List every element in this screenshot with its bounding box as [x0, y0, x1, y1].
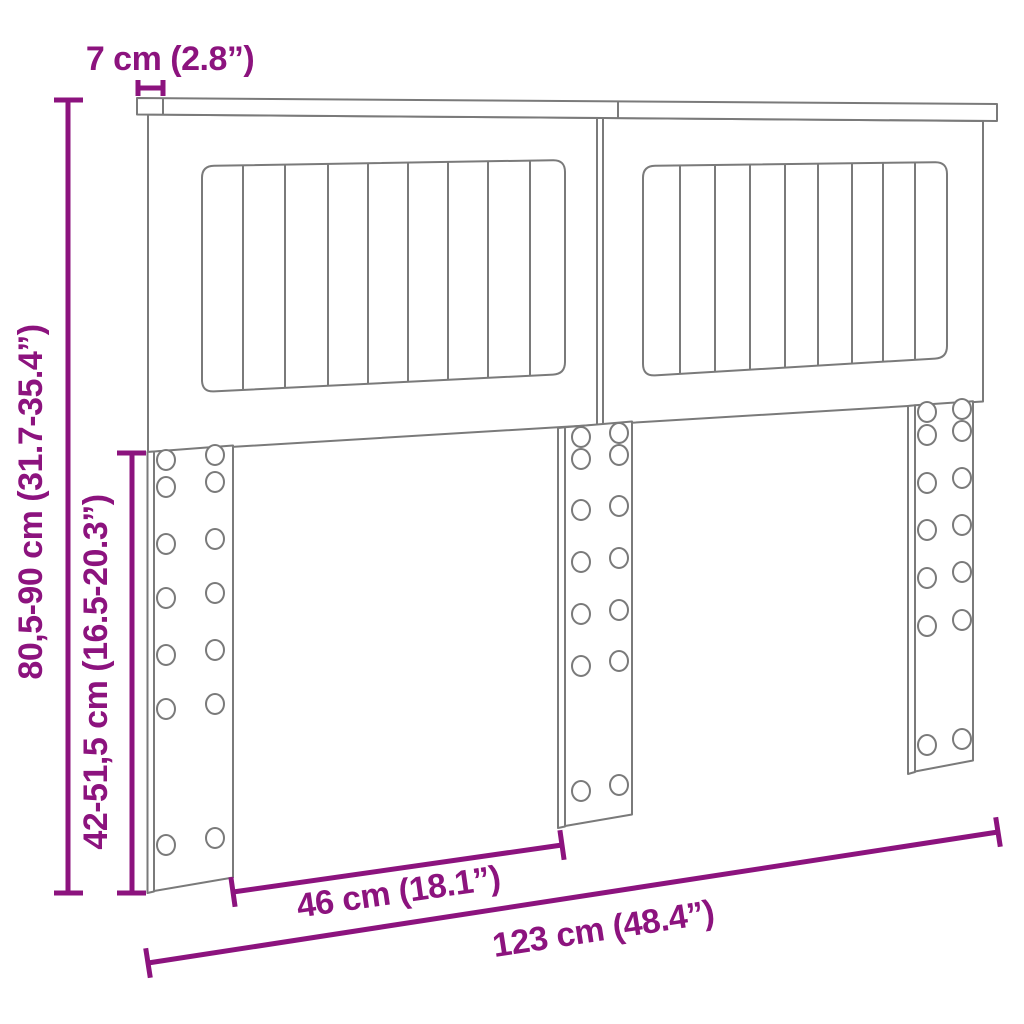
- screw-hole: [572, 604, 590, 624]
- screw-hole: [157, 645, 175, 665]
- screw-hole: [918, 473, 936, 493]
- screw-hole: [157, 534, 175, 554]
- screw-hole: [953, 610, 971, 630]
- leg-right-side-face: [908, 405, 915, 774]
- leg-center: [558, 422, 632, 829]
- screw-hole: [610, 423, 628, 443]
- screw-hole: [610, 600, 628, 620]
- overall-height-label: 80,5-90 cm (31.7-35.4”): [12, 324, 50, 679]
- screw-hole: [953, 515, 971, 535]
- rail-overhang-label: 7 cm (2.8”): [86, 40, 254, 78]
- dim-overall-width: 123 cm (48.4”): [146, 817, 1001, 978]
- screw-hole: [610, 651, 628, 671]
- screw-hole: [918, 735, 936, 755]
- screw-hole: [953, 562, 971, 582]
- leg-left: [148, 445, 234, 893]
- headboard-dimension-diagram: 7 cm (2.8”) 80,5-90 cm (31.7-35.4”) 42-5…: [0, 0, 1024, 1024]
- leg-left-front-face: [154, 446, 233, 892]
- leg-right: [908, 399, 973, 774]
- screw-hole: [918, 616, 936, 636]
- screw-hole: [572, 552, 590, 572]
- screw-hole: [206, 828, 224, 848]
- dim-tick: [231, 877, 235, 907]
- screw-hole: [572, 781, 590, 801]
- leg-center-side-face: [558, 427, 565, 828]
- dim-tick: [146, 948, 151, 978]
- dim-rail-overhang: 7 cm (2.8”): [86, 40, 254, 96]
- screw-hole: [953, 421, 971, 441]
- dim-overall-height: 80,5-90 cm (31.7-35.4”): [12, 100, 83, 893]
- screw-hole: [157, 588, 175, 608]
- screw-hole: [157, 477, 175, 497]
- screw-hole: [572, 427, 590, 447]
- dim-leg-height: 42-51,5 cm (16.5-20.3”): [77, 453, 146, 893]
- screw-hole: [918, 402, 936, 422]
- diagram-canvas: 7 cm (2.8”) 80,5-90 cm (31.7-35.4”) 42-5…: [0, 0, 1024, 1024]
- dim-tick: [996, 817, 1001, 847]
- screw-hole: [157, 450, 175, 470]
- screw-hole: [610, 548, 628, 568]
- screw-hole: [206, 583, 224, 603]
- screw-hole: [610, 775, 628, 795]
- screw-hole: [918, 425, 936, 445]
- screw-hole: [953, 399, 971, 419]
- screw-hole: [206, 694, 224, 714]
- headboard-drawing: [137, 98, 997, 893]
- dim-leg-spacing: 46 cm (18.1”): [231, 830, 564, 925]
- screw-hole: [572, 656, 590, 676]
- screw-hole: [918, 568, 936, 588]
- screw-hole: [206, 529, 224, 549]
- screw-hole: [206, 472, 224, 492]
- leg-height-label: 42-51,5 cm (16.5-20.3”): [77, 494, 115, 849]
- screw-hole: [572, 500, 590, 520]
- screw-hole: [572, 449, 590, 469]
- screw-hole: [206, 640, 224, 660]
- screw-hole: [953, 468, 971, 488]
- screw-hole: [953, 729, 971, 749]
- screw-hole: [206, 445, 224, 465]
- leg-center-front-face: [565, 422, 632, 827]
- screw-hole: [610, 496, 628, 516]
- screw-hole: [610, 445, 628, 465]
- screw-hole: [918, 520, 936, 540]
- screw-hole: [157, 835, 175, 855]
- screw-hole: [157, 699, 175, 719]
- dim-tick: [560, 830, 564, 860]
